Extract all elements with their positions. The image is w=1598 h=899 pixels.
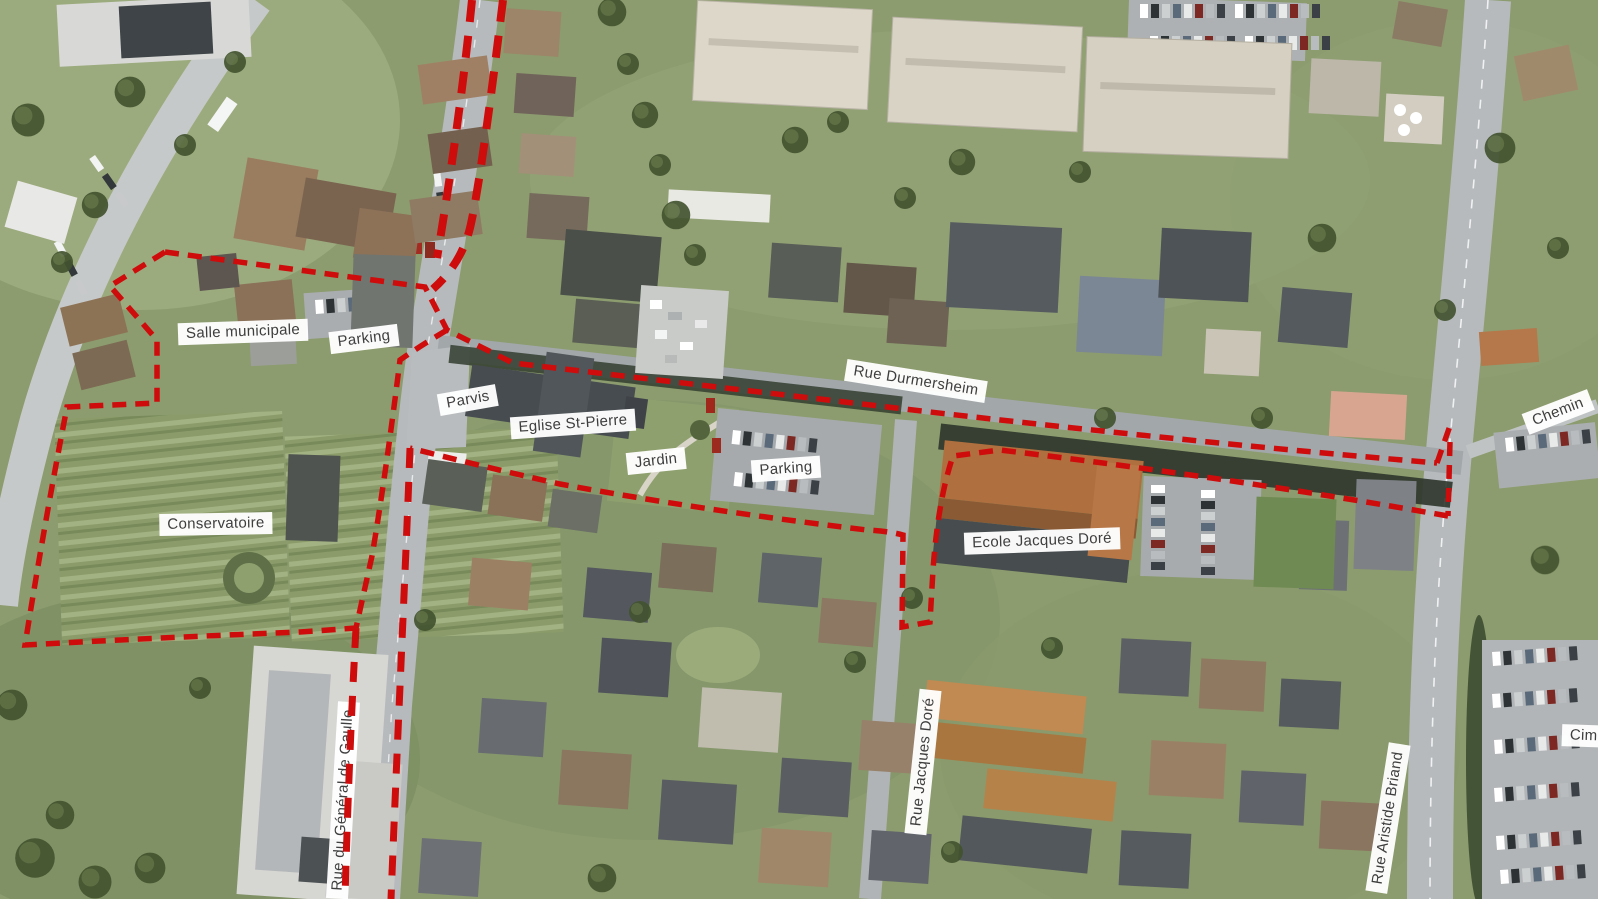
boundary-road-west-top: [437, 0, 472, 258]
place-label-conservatoire: Conservatoire: [159, 512, 273, 536]
boundary-road-east-south: [391, 448, 410, 899]
boundary-road-west-south: [345, 628, 356, 899]
place-label-salle-municipale: Salle municipale: [178, 319, 309, 346]
aerial-map: Salle municipale Parking Parvis Eglise S…: [0, 0, 1598, 899]
boundary-perimeter-south: [410, 448, 1448, 627]
boundary-perimeter-north: [165, 252, 1437, 463]
boundary-perimeter-west: [25, 252, 356, 645]
place-label-cimetiere: Cime: [1562, 724, 1598, 748]
boundary-road-west-mid: [356, 330, 447, 628]
boundary-perimeter-east: [1437, 420, 1452, 516]
project-boundary-overlay: [0, 0, 1598, 899]
